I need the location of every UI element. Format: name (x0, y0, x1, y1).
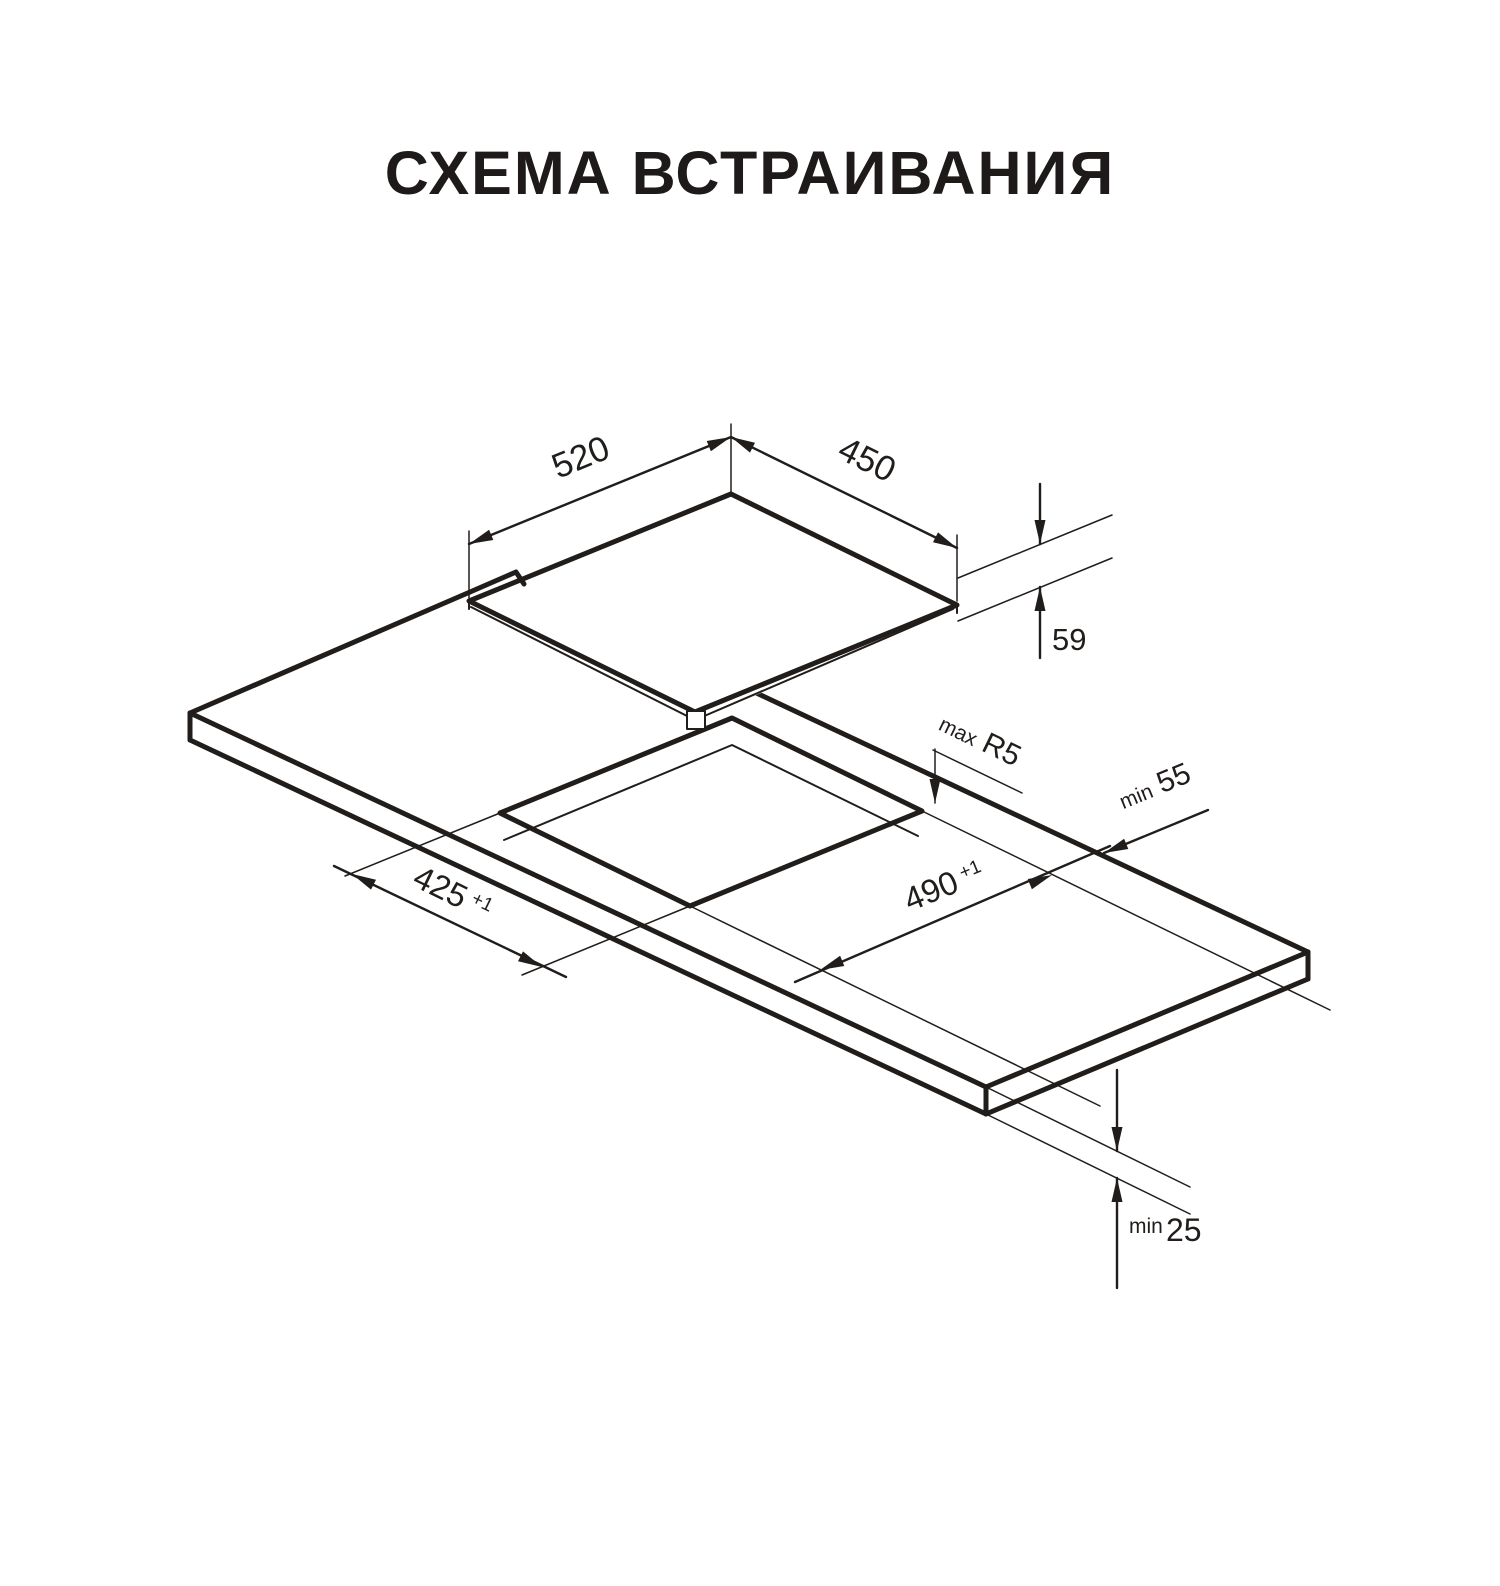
dimension-label-max-r5: maxR5 (934, 706, 1026, 773)
countertop-back-left-edge (190, 592, 470, 713)
countertop-bottom-right-edge (986, 979, 1308, 1114)
countertop-back-right-edge (750, 690, 1308, 952)
extension-line-59-lower (958, 558, 1112, 621)
dimension-label-425: 425+1 (408, 858, 499, 928)
installation-scheme-page: СХЕМА ВСТРАИВАНИЯ (0, 0, 1500, 1586)
dimension-label-520: 520 (546, 428, 615, 486)
cutout (500, 718, 922, 906)
dimension-label-450: 450 (832, 429, 902, 490)
arrowhead-520-right (707, 437, 731, 451)
cutout-opening-outline (500, 718, 922, 906)
arrowhead-min25-down (1112, 1127, 1123, 1151)
arrowhead-425-left (352, 874, 376, 890)
arrowhead-59-up (1035, 587, 1046, 611)
dimension-label-490: 490+1 (898, 852, 989, 918)
arrowhead-min25-up (1112, 1178, 1123, 1202)
hob (469, 494, 957, 729)
dimension-label-min-25: min25 (1129, 1212, 1202, 1248)
extension-line-min25-lower (986, 1114, 1190, 1214)
cutout-inner-wall-bottom-edges (504, 745, 918, 840)
hob-body-mask (469, 494, 957, 720)
extension-line-59-upper (958, 515, 1112, 578)
arrowhead-490-left (820, 956, 844, 970)
arrowhead-r5 (930, 779, 941, 803)
countertop-front-left-edge (190, 713, 986, 1087)
extension-line-490-upper (922, 811, 1330, 1010)
dimension-label-min-55: min55 (1113, 757, 1195, 816)
arrowhead-425-right (518, 951, 542, 967)
arrowhead-450-right (933, 532, 957, 548)
countertop-front-right-edge (986, 952, 1308, 1087)
hob-foot-fill (687, 711, 705, 729)
extension-line-min25-upper (986, 1087, 1190, 1187)
arrowhead-59-down (1035, 520, 1046, 544)
arrowhead-490-right (1028, 875, 1052, 889)
arrowhead-520-left (469, 530, 493, 544)
arrowhead-450-left (731, 437, 755, 453)
dimension-label-59: 59 (1052, 622, 1086, 657)
countertop-bottom-left-edge (190, 740, 986, 1114)
installation-diagram: 520 450 59 maxR5 min5 (0, 0, 1500, 1586)
